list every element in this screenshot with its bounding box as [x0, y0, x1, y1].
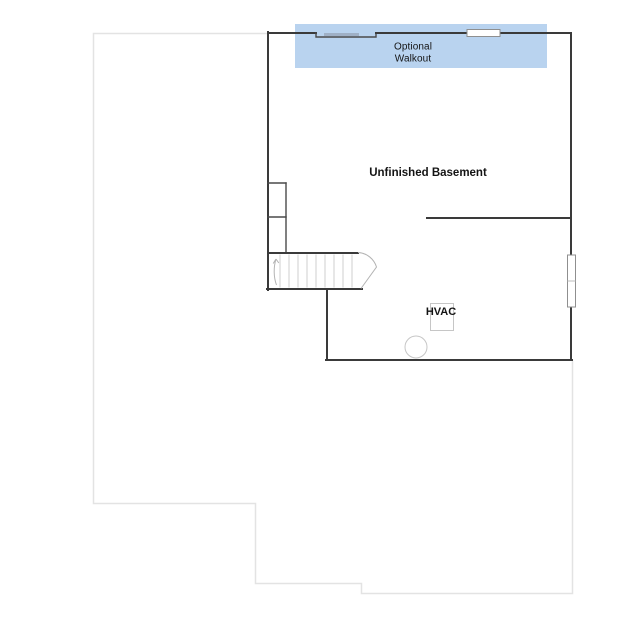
- water-heater-icon: [405, 336, 427, 358]
- unfinished-basement-label: Unfinished Basement: [369, 167, 487, 179]
- stair-direction-arrow-icon: [273, 259, 279, 285]
- footprint-outline: [94, 34, 573, 594]
- stair-run-pointer-icon: [358, 253, 377, 289]
- floor-plan-page: Optional Walkout Unfinished Basement HVA…: [0, 0, 640, 640]
- hvac-label: HVAC: [426, 306, 456, 318]
- top-window-icon: [467, 30, 500, 37]
- stair-steps: [280, 255, 352, 288]
- floor-plan-canvas: [0, 0, 640, 640]
- optional-walkout-label: Optional Walkout: [394, 42, 432, 65]
